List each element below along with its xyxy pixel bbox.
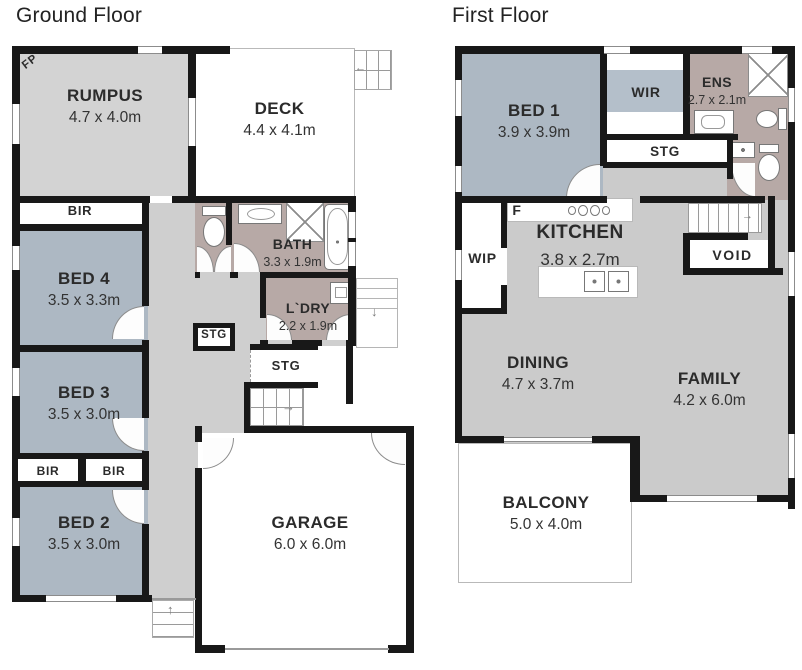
bir-label: BIR — [86, 464, 142, 478]
hallway — [148, 346, 250, 433]
bed4-label: BED 4 3.5 x 3.3m — [22, 268, 146, 311]
window — [12, 368, 20, 396]
wall — [195, 468, 202, 652]
hallway — [148, 196, 198, 346]
entry-hall — [148, 433, 198, 600]
stg-label-hall: STG — [196, 329, 232, 341]
laundry-opening — [322, 340, 346, 346]
rumpus-label: RUMPUS 4.7 x 4.0m — [25, 85, 185, 128]
ground-floor-title: Ground Floor — [16, 4, 142, 28]
island-sink — [584, 271, 605, 292]
deck-label: DECK 4.4 x 4.1m — [212, 98, 347, 141]
rumpus-door-gap — [150, 196, 172, 203]
first-floor-title: First Floor — [452, 4, 549, 28]
wall — [195, 426, 202, 442]
side-landing-arrow: ↓ — [371, 305, 378, 318]
front-door-line — [152, 598, 196, 600]
wc-opening — [200, 272, 230, 278]
family-label: FAMILY 4.2 x 6.0m — [632, 368, 787, 411]
wall — [603, 162, 733, 168]
bath-label: BATH 3.3 x 1.9m — [240, 236, 345, 270]
wall — [640, 196, 765, 203]
bed2-label: BED 2 3.5 x 3.0m — [22, 512, 146, 555]
first-floor-stairs-arrow: → — [742, 211, 753, 222]
island-sink — [608, 271, 629, 292]
window — [788, 88, 795, 122]
bath-opening — [238, 272, 260, 278]
garage-side-door-arc — [371, 433, 405, 465]
bir-label: BIR — [18, 464, 78, 478]
void-label: VOID — [690, 247, 775, 263]
wall — [768, 196, 775, 244]
wall — [455, 280, 462, 443]
stg-label: STG — [603, 144, 727, 159]
floorplan-canvas: ← → ↑ ↓ — [0, 0, 802, 670]
garage-door-arc — [203, 438, 234, 469]
toilet-cistern — [202, 206, 226, 216]
balcony-label: BALCONY 5.0 x 4.0m — [460, 492, 632, 535]
wall — [683, 233, 748, 240]
window — [455, 80, 462, 116]
stg-label-stairs: STG — [260, 358, 312, 373]
window — [12, 104, 20, 144]
toilet-icon — [203, 217, 225, 247]
window — [788, 252, 795, 296]
kitchen-label: KITCHEN 3.8 x 2.7m — [500, 221, 660, 270]
bath-vanity — [238, 204, 282, 224]
wall — [12, 46, 230, 54]
cooktop-icon — [568, 202, 610, 218]
wall — [388, 645, 414, 653]
wall — [250, 382, 318, 388]
wall — [458, 436, 504, 443]
sliding-door — [504, 437, 592, 442]
ensuite-vanity — [694, 110, 734, 134]
wall — [346, 346, 353, 404]
family-area — [630, 443, 795, 499]
porch-steps-arrow: ↑ — [167, 603, 174, 616]
wc2-toilet-cistern — [759, 144, 779, 153]
wall — [727, 134, 733, 179]
wall — [12, 345, 149, 352]
window — [138, 46, 162, 54]
wall — [244, 426, 414, 433]
wc2-vanity — [731, 142, 755, 158]
wc2-toilet-icon — [758, 154, 780, 181]
bir-label: BIR — [40, 203, 120, 218]
window — [12, 518, 20, 546]
laundry-label: L`DRY 2.2 x 1.9m — [262, 300, 354, 334]
ground-stairs-arrow: → — [282, 400, 295, 413]
window — [12, 246, 20, 270]
bed1-label: BED 1 3.9 x 3.9m — [464, 100, 604, 143]
window — [46, 595, 116, 602]
garage-label: GARAGE 6.0 x 6.0m — [225, 512, 395, 555]
wall — [12, 224, 149, 231]
wall — [603, 134, 738, 140]
wall — [455, 46, 462, 80]
wall — [406, 426, 414, 652]
wall — [458, 196, 607, 203]
window — [742, 46, 772, 54]
wall — [455, 116, 462, 166]
wall — [226, 203, 232, 245]
window — [348, 212, 356, 238]
window — [455, 166, 462, 192]
ensuite-toilet-cistern — [778, 108, 787, 130]
window — [604, 46, 630, 54]
dining-label: DINING 4.7 x 3.7m — [462, 352, 614, 395]
garage-door-line — [225, 648, 389, 650]
ground-stairs — [250, 388, 304, 426]
wall — [12, 196, 356, 203]
fridge-label: F — [509, 202, 525, 218]
ensuite-toilet-icon — [756, 110, 778, 128]
wall — [250, 344, 318, 350]
bed3-label: BED 3 3.5 x 3.0m — [22, 382, 146, 425]
window — [788, 434, 795, 478]
window — [188, 98, 196, 146]
window — [348, 242, 356, 266]
deck-stairs-arrow: ← — [355, 63, 366, 74]
wall — [455, 308, 507, 314]
window — [667, 495, 757, 502]
wall — [195, 645, 225, 653]
ensuite-label: ENS 2.7 x 2.1m — [668, 74, 766, 108]
